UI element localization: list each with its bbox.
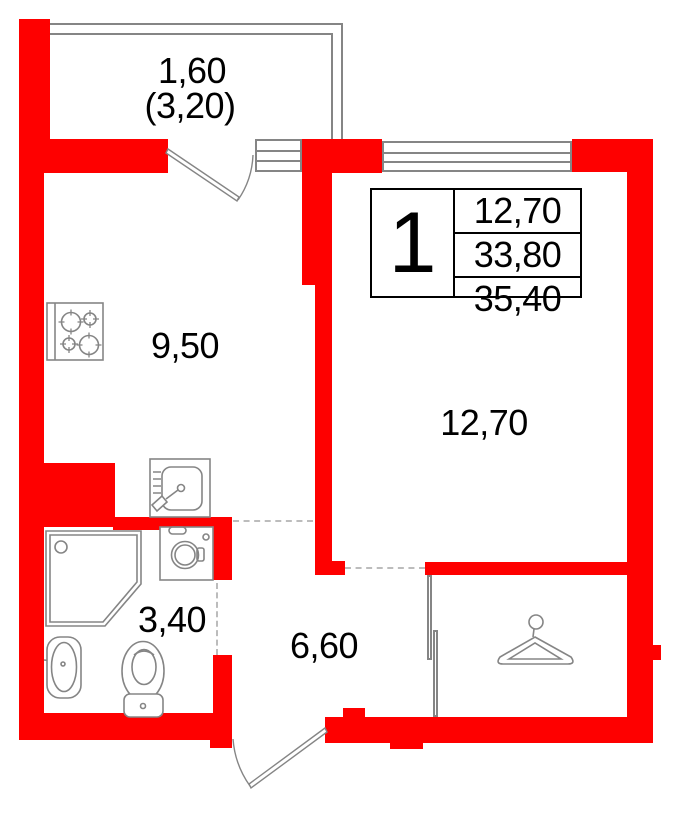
shower-cabin-icon — [46, 531, 141, 626]
hallway-area-label: 6,60 — [290, 625, 358, 667]
washbasin-icon — [44, 637, 81, 698]
floor-plan: 1,60 (3,20) 9,50 12,70 3,40 6,60 1 12,70… — [0, 0, 673, 813]
balcony-total-label: (3,20) — [144, 85, 235, 127]
balcony-door-swing — [166, 149, 253, 201]
toilet-icon — [122, 642, 164, 718]
area-rows: 12,70 33,80 35,40 — [455, 190, 580, 296]
stove-icon — [47, 303, 103, 360]
bathroom-area-label: 3,40 — [138, 599, 206, 641]
info-row-living-area: 12,70 — [455, 190, 580, 234]
fixtures-layer — [0, 0, 673, 813]
apartment-info-box: 1 12,70 33,80 35,40 — [370, 188, 582, 298]
rooms-count: 1 — [372, 190, 455, 296]
clothes-hanger-icon — [498, 615, 573, 664]
kitchen-area-label: 9,50 — [151, 325, 219, 367]
washing-machine-icon — [160, 527, 213, 580]
info-row-total-area: 33,80 — [455, 234, 580, 278]
info-row-overall-area: 35,40 — [455, 278, 580, 320]
living-room-area-label: 12,70 — [440, 402, 528, 444]
kitchen-sink-icon — [150, 459, 210, 517]
entrance-door-swing — [233, 728, 327, 788]
